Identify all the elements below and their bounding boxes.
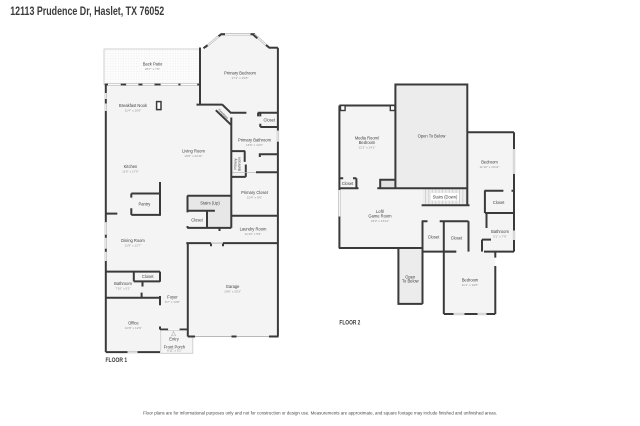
- svg-text:26'7" x 7'6": 26'7" x 7'6": [145, 67, 160, 71]
- svg-text:Living Room: Living Room: [182, 149, 205, 154]
- svg-text:Primary Bathroom: Primary Bathroom: [238, 138, 272, 143]
- svg-text:Bathroom: Bathroom: [491, 229, 509, 234]
- svg-text:10'9" x 12'9": 10'9" x 12'9": [125, 326, 142, 330]
- svg-text:11'10" x 5'9": 11'10" x 5'9": [245, 232, 262, 236]
- svg-text:7'10" x 5'1": 7'10" x 5'1": [115, 287, 130, 291]
- svg-text:12113 Prudence Dr, Haslet, TX: 12113 Prudence Dr, Haslet, TX 76052: [10, 4, 164, 18]
- svg-text:Closet: Closet: [142, 274, 154, 279]
- svg-text:Primary Closet: Primary Closet: [241, 190, 269, 195]
- svg-text:6'11" x 5'1": 6'11" x 5'1": [167, 349, 182, 353]
- svg-text:Office: Office: [128, 321, 139, 326]
- svg-text:Bedroom: Bedroom: [462, 278, 479, 283]
- svg-text:Bedroom: Bedroom: [481, 160, 498, 165]
- svg-text:11'6" x 17'0": 11'6" x 17'0": [122, 170, 139, 174]
- svg-text:12'1" x 14'1": 12'1" x 14'1": [359, 146, 376, 150]
- svg-text:Entry: Entry: [169, 336, 180, 341]
- svg-text:Stairs (Up): Stairs (Up): [200, 201, 220, 206]
- svg-text:Foyer: Foyer: [167, 295, 178, 300]
- svg-text:Closet: Closet: [342, 181, 354, 186]
- svg-text:10'4" x 9'6": 10'4" x 9'6": [247, 196, 262, 200]
- svg-text:Closet: Closet: [428, 235, 440, 240]
- svg-text:Dining Room: Dining Room: [121, 238, 145, 243]
- svg-text:Pantry: Pantry: [138, 202, 151, 207]
- svg-text:11'4" x 10'0": 11'4" x 10'0": [125, 109, 142, 113]
- svg-text:Back Patio: Back Patio: [143, 62, 163, 67]
- svg-text:11'10" x 10'11": 11'10" x 10'11": [480, 165, 500, 169]
- svg-text:11'1" x 10'6": 11'1" x 10'6": [462, 283, 479, 287]
- svg-text:FLOOR 1: FLOOR 1: [106, 358, 128, 364]
- svg-text:Stairs (Down): Stairs (Down): [433, 194, 458, 199]
- svg-text:Closet: Closet: [451, 235, 463, 240]
- svg-text:Breakfast Nook: Breakfast Nook: [119, 103, 148, 108]
- svg-text:Primary Bedroom: Primary Bedroom: [224, 71, 256, 76]
- svg-text:16'0" x 15'11": 16'0" x 15'11": [371, 219, 389, 223]
- svg-text:Closet: Closet: [191, 218, 203, 223]
- svg-text:5'1" x 7'9": 5'1" x 7'9": [493, 234, 507, 238]
- svg-text:Floor plans are for informatio: Floor plans are for informational purpos…: [143, 411, 497, 416]
- svg-text:17'1" x 15'8": 17'1" x 15'8": [232, 76, 249, 80]
- svg-text:19'6" x 22'11": 19'6" x 22'11": [184, 154, 202, 158]
- svg-text:Game Room: Game Room: [368, 214, 392, 219]
- svg-text:Bathroom: Bathroom: [114, 281, 132, 286]
- svg-text:16'9" x 12'9": 16'9" x 12'9": [246, 143, 263, 147]
- svg-text:6'7" x 13'8": 6'7" x 13'8": [165, 300, 180, 304]
- svg-text:Bathroom: Bathroom: [237, 157, 241, 171]
- svg-text:11'9" x 12'7": 11'9" x 12'7": [125, 244, 142, 248]
- svg-text:Closet: Closet: [263, 118, 275, 123]
- svg-text:Closet: Closet: [493, 200, 505, 205]
- svg-text:Open To Below: Open To Below: [418, 133, 446, 138]
- svg-text:Laundry Room: Laundry Room: [240, 227, 267, 232]
- svg-text:FLOOR 2: FLOOR 2: [339, 321, 361, 327]
- svg-text:To Below: To Below: [402, 279, 419, 284]
- svg-text:Bedroom: Bedroom: [359, 140, 376, 145]
- svg-text:Kitchen: Kitchen: [124, 164, 138, 169]
- svg-text:19'8" x 20'3": 19'8" x 20'3": [224, 290, 241, 294]
- svg-text:Garage: Garage: [226, 284, 240, 289]
